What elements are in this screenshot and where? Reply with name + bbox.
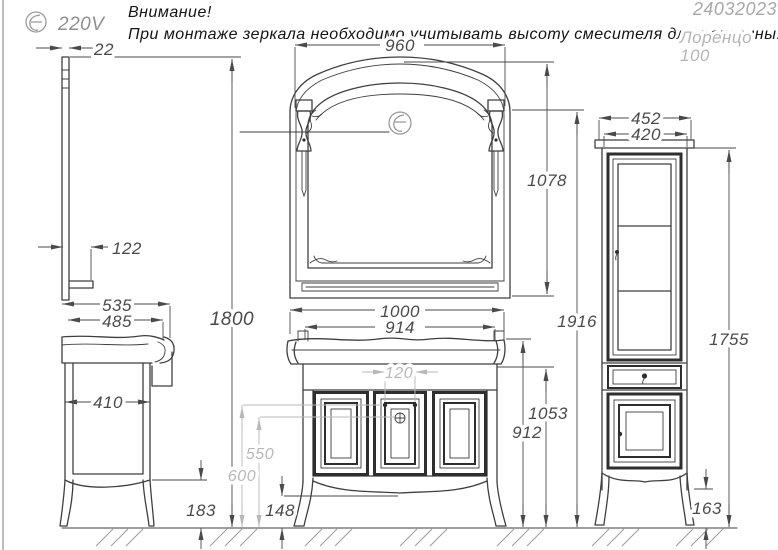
dim-mirror-width: 960 xyxy=(385,36,415,55)
dim-drain-height: 550 xyxy=(246,446,274,463)
dim-total-height: 1916 xyxy=(557,312,597,331)
model-size: 100 xyxy=(680,46,710,65)
ground-hatching xyxy=(96,529,723,546)
dim-countertop-height: 1053 xyxy=(528,404,568,423)
faucet-hole-right xyxy=(413,403,417,407)
glass-door xyxy=(608,154,681,360)
dim-column-body-width: 420 xyxy=(631,125,661,144)
cabinet-drawer xyxy=(608,366,681,388)
drain-mark-icon xyxy=(395,413,405,423)
dim-mount-height: 1800 xyxy=(210,309,254,330)
dim-mirror-thickness: 22 xyxy=(93,40,114,59)
dim-column-leg-height: 163 xyxy=(692,499,722,518)
sconce-left xyxy=(296,100,312,196)
warning-title: Внимание! xyxy=(128,4,212,21)
keyhole-lower-door xyxy=(618,432,622,436)
dim-side-leg-height: 183 xyxy=(186,501,216,520)
ground-line xyxy=(62,528,737,546)
dim-column-height: 1755 xyxy=(709,330,749,349)
corner-ornament-bottom-left xyxy=(310,256,337,263)
keyhole-glass-door xyxy=(615,250,619,254)
corner-ornament-bottom-right xyxy=(463,256,490,263)
mirror-front-view xyxy=(240,57,510,298)
faucet-hole-left xyxy=(383,403,387,407)
vanity-door-center xyxy=(375,393,426,475)
dim-side-body-depth: 485 xyxy=(102,312,132,331)
technical-drawing: 220V Внимание! При монтаже зеркала необх… xyxy=(0,0,778,550)
dim-shelf-depth: 122 xyxy=(112,239,142,258)
tall-cabinet-view xyxy=(595,140,694,525)
dim-supply-height: 600 xyxy=(228,468,256,485)
dim-vanity-leg-height: 148 xyxy=(265,501,295,520)
dim-vanity-body-width: 914 xyxy=(385,318,415,337)
mirror-side-view xyxy=(62,57,93,300)
dim-faucet-spacing: 120 xyxy=(385,365,413,382)
dim-side-inner-depth: 410 xyxy=(93,393,123,412)
vanity-front-view xyxy=(287,331,506,526)
lamp-power-icon xyxy=(26,12,46,32)
date-code: 24032023 xyxy=(692,0,777,19)
dim-mirror-height: 1078 xyxy=(527,171,567,190)
vanity-side-view xyxy=(60,336,174,526)
lamp-symbol-icon xyxy=(240,112,411,134)
vanity-door-right xyxy=(434,393,486,475)
voltage-label: 220V xyxy=(57,14,106,35)
drawing-sheet: 220V Внимание! При монтаже зеркала необх… xyxy=(0,0,778,550)
sconce-right xyxy=(488,100,504,196)
drawer-knob xyxy=(642,373,647,378)
cabinet-lower-door xyxy=(608,394,681,468)
model-name: Лоренцо xyxy=(679,28,752,47)
dim-vanity-body-height: 912 xyxy=(512,423,542,442)
